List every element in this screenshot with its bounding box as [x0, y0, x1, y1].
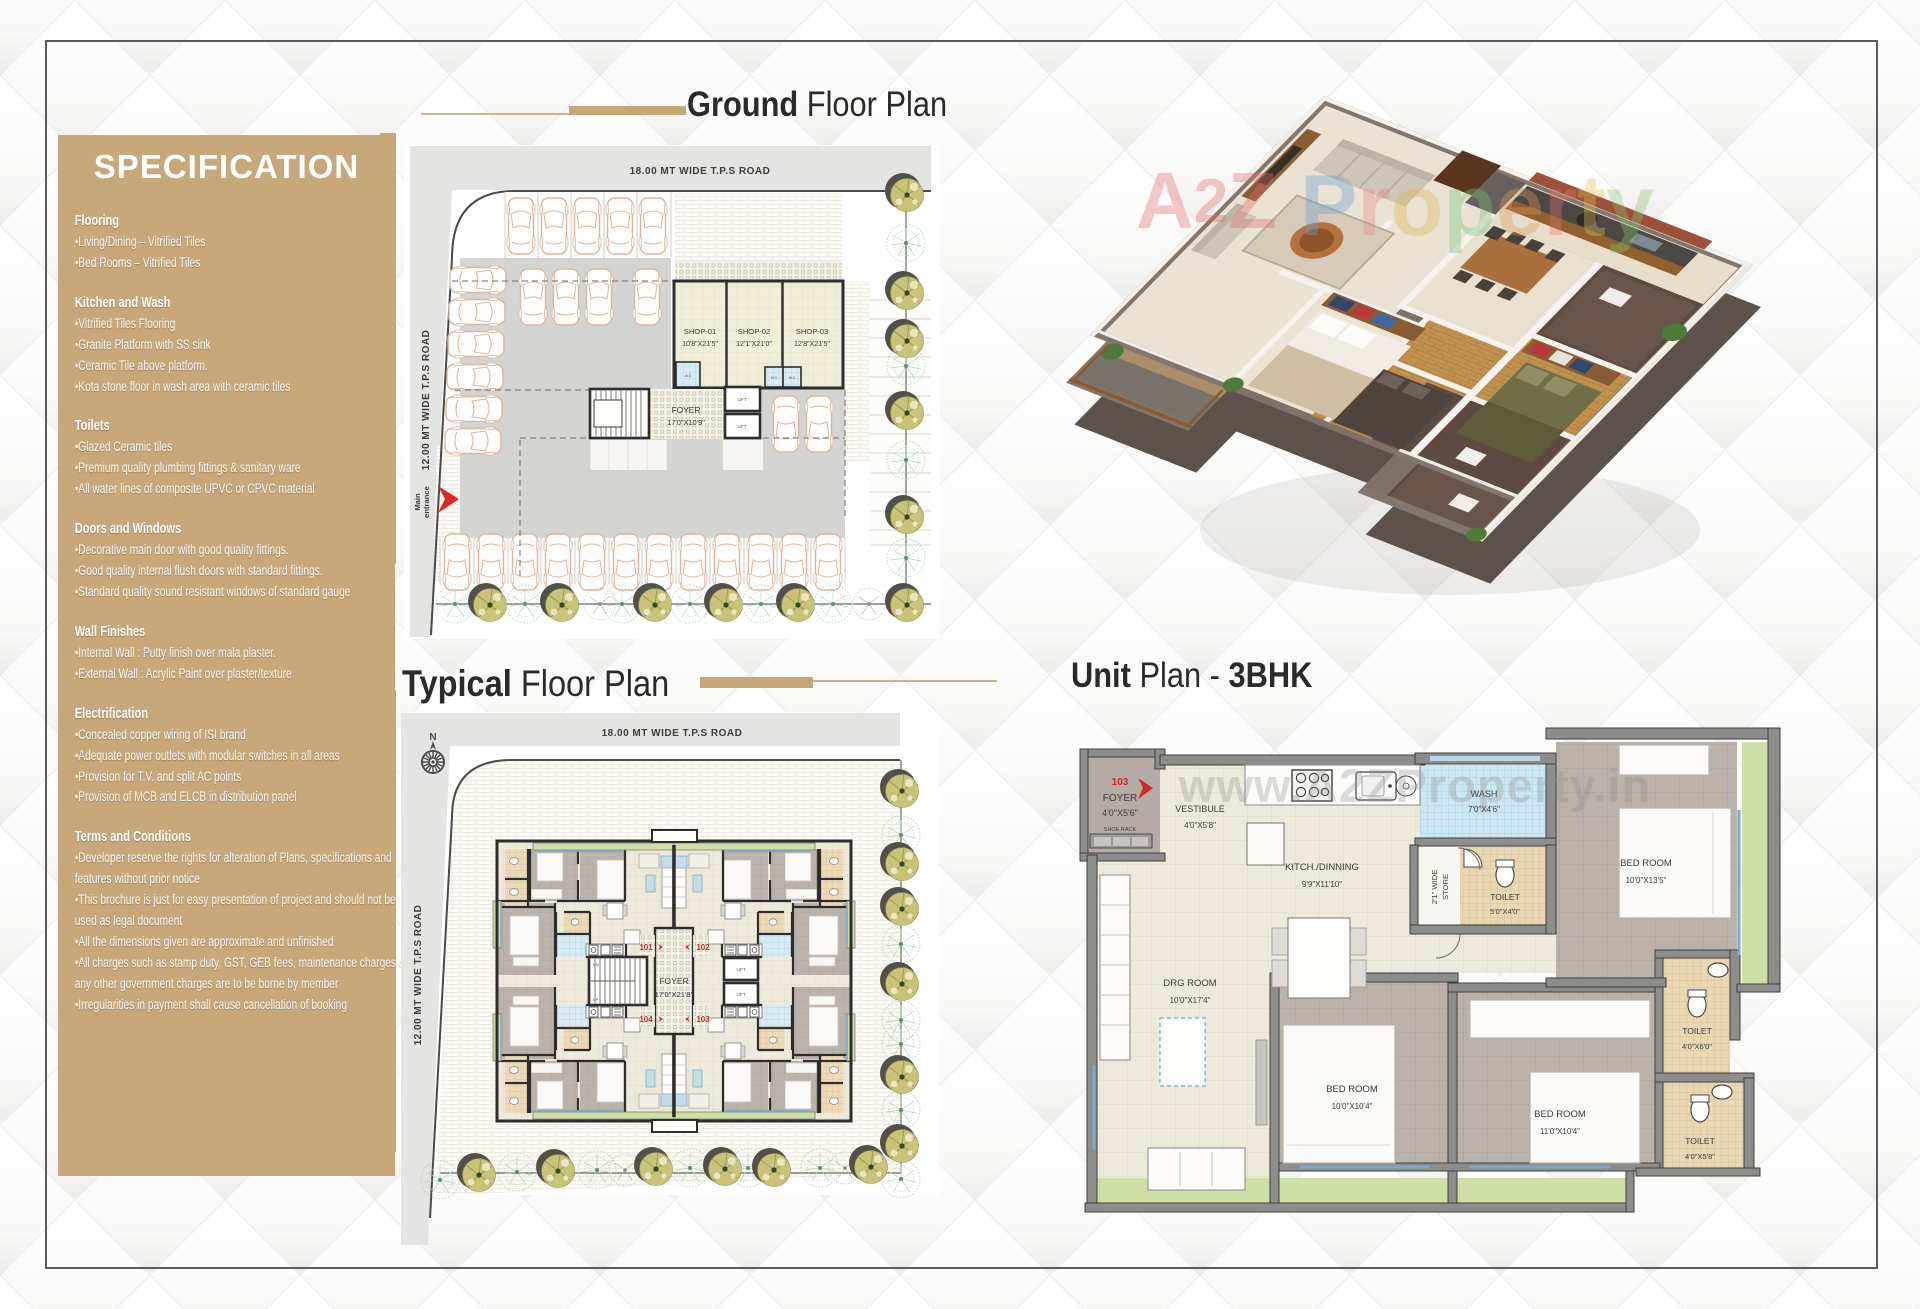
svg-text:FOYER: FOYER	[659, 976, 689, 986]
svg-text:SHOP-01: SHOP-01	[684, 327, 717, 336]
svg-text:www.A2ZProperty.in: www.A2ZProperty.in	[1178, 759, 1651, 812]
svg-text:9'9"X11'10": 9'9"X11'10"	[1302, 880, 1342, 889]
svg-text:10'0"X13'5": 10'0"X13'5"	[1626, 876, 1667, 885]
svg-text:FOYER: FOYER	[672, 405, 701, 415]
svg-text:12.00 MT WIDE T.P.S ROAD: 12.00 MT WIDE T.P.S ROAD	[413, 905, 424, 1046]
svg-text:17'0"X21'8": 17'0"X21'8"	[655, 990, 694, 999]
svg-text:TOILET: TOILET	[1490, 892, 1520, 902]
svg-text:2'1" WIDE: 2'1" WIDE	[1430, 870, 1439, 905]
svg-text:W.C: W.C	[789, 376, 796, 380]
svg-text:FOYER: FOYER	[1103, 793, 1137, 804]
svg-text:4'0"X5'6": 4'0"X5'6"	[1102, 808, 1138, 818]
svg-text:LIFT: LIFT	[736, 992, 745, 997]
svg-text:LIFT: LIFT	[737, 397, 746, 402]
svg-text:102: 102	[696, 943, 710, 952]
svg-text:5'0"X4'0": 5'0"X4'0"	[1490, 907, 1520, 916]
svg-text:12'1"X21'0": 12'1"X21'0"	[736, 341, 772, 348]
svg-text:BED ROOM: BED ROOM	[1620, 858, 1672, 869]
svg-text:BED ROOM: BED ROOM	[1326, 1084, 1378, 1095]
svg-text:12.00 MT WIDE T.P.S ROAD: 12.00 MT WIDE T.P.S ROAD	[421, 330, 432, 471]
svg-text:BED ROOM: BED ROOM	[1534, 1109, 1586, 1120]
svg-text:103: 103	[1112, 777, 1129, 788]
svg-text:12'8"X21'5": 12'8"X21'5"	[794, 341, 830, 348]
svg-text:101: 101	[639, 943, 653, 952]
svg-text:18.00 MT WIDE T.P.S ROAD: 18.00 MT WIDE T.P.S ROAD	[630, 166, 771, 177]
svg-text:SHOE RACK: SHOE RACK	[1104, 827, 1137, 833]
svg-text:STORE: STORE	[1441, 874, 1450, 900]
svg-text:W.C: W.C	[771, 376, 778, 380]
svg-text:103: 103	[696, 1015, 710, 1024]
svg-text:UP: UP	[593, 997, 599, 1002]
svg-text:LIFT: LIFT	[736, 967, 745, 972]
svg-text:SHOP-02: SHOP-02	[738, 327, 771, 336]
svg-text:17'0"X10'9": 17'0"X10'9"	[667, 418, 705, 427]
svg-text:Property: Property	[1300, 158, 1654, 254]
svg-text:Main: Main	[413, 493, 422, 511]
svg-text:TOILET: TOILET	[1685, 1136, 1715, 1146]
svg-text:W.C: W.C	[685, 374, 692, 378]
svg-text:4'0"X5'8": 4'0"X5'8"	[1184, 821, 1216, 830]
svg-text:entrance: entrance	[422, 486, 431, 518]
svg-text:18.00 MT WIDE T.P.S ROAD: 18.00 MT WIDE T.P.S ROAD	[602, 728, 743, 739]
svg-text:KITCH./DINNING: KITCH./DINNING	[1285, 862, 1359, 873]
svg-text:TOILET: TOILET	[1682, 1026, 1712, 1036]
svg-text:DN: DN	[593, 962, 599, 967]
svg-text:DRG ROOM: DRG ROOM	[1163, 978, 1216, 989]
svg-text:10'0"X10'4": 10'0"X10'4"	[1332, 1102, 1373, 1111]
svg-text:10'8"X21'5": 10'8"X21'5"	[682, 341, 718, 348]
svg-text:SHOP-03: SHOP-03	[796, 327, 829, 336]
svg-text:4'0"X5'8": 4'0"X5'8"	[1685, 1152, 1715, 1161]
svg-text:11'0"X10'4": 11'0"X10'4"	[1540, 1127, 1580, 1136]
svg-text:104: 104	[639, 1015, 653, 1024]
svg-text:A2Z: A2Z	[1136, 156, 1277, 245]
svg-text:10'0"X17'4": 10'0"X17'4"	[1170, 996, 1211, 1005]
svg-text:LIFT: LIFT	[737, 424, 746, 429]
svg-text:4'0"X6'0": 4'0"X6'0"	[1682, 1042, 1712, 1051]
